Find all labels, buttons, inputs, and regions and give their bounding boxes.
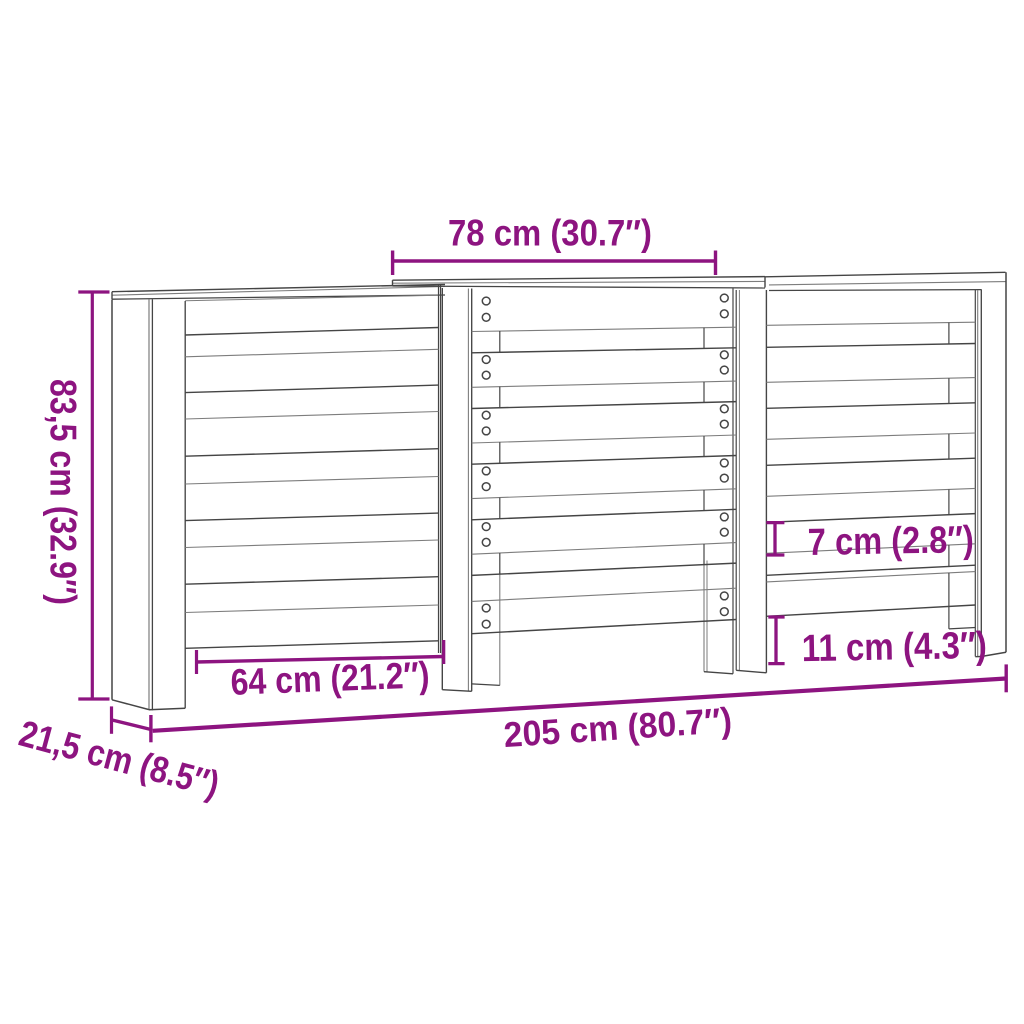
svg-text:11 cm (4.3″): 11 cm (4.3″) (801, 625, 987, 670)
svg-text:7 cm (2.8″): 7 cm (2.8″) (807, 519, 974, 564)
svg-text:83,5 cm (32.9″): 83,5 cm (32.9″) (43, 379, 84, 605)
svg-text:78 cm (30.7″): 78 cm (30.7″) (448, 212, 652, 253)
svg-text:64 cm (21.2″): 64 cm (21.2″) (230, 654, 430, 703)
